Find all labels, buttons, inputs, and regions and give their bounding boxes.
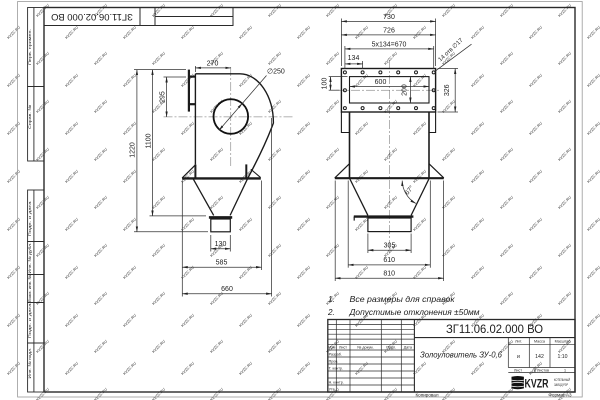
svg-text:Листов: Листов <box>537 368 549 372</box>
svg-text:Масса: Масса <box>534 340 546 344</box>
svg-text:585: 585 <box>216 260 228 267</box>
svg-text:610: 610 <box>383 257 395 264</box>
svg-text:Изм: Изм <box>329 346 336 350</box>
svg-text:326: 326 <box>444 84 451 96</box>
svg-text:Формат А3: Формат А3 <box>548 392 572 397</box>
svg-text:Масштаб: Масштаб <box>555 340 571 344</box>
svg-text:Золоуловитель ЗУ-0,6: Золоуловитель ЗУ-0,6 <box>420 350 502 360</box>
svg-text:Т. контр.: Т. контр. <box>329 366 343 370</box>
svg-text:1220: 1220 <box>130 142 137 158</box>
svg-text:200: 200 <box>402 84 409 96</box>
svg-text:ЗГ11.06.02.000 ВО: ЗГ11.06.02.000 ВО <box>51 11 133 22</box>
svg-text:295: 295 <box>159 91 166 103</box>
svg-text:1.: 1. <box>328 295 335 304</box>
svg-text:134: 134 <box>348 55 360 62</box>
svg-text:Н. контр.: Н. контр. <box>329 380 344 384</box>
svg-text:ЗАВОД РЗР: ЗАВОД РЗР <box>554 383 569 387</box>
svg-text:Инв. № подл.: Инв. № подл. <box>27 348 32 379</box>
svg-text:730: 730 <box>383 14 395 21</box>
svg-text:600: 600 <box>375 79 387 86</box>
svg-text:ЗГ11.06.02.000 ВО: ЗГ11.06.02.000 ВО <box>446 322 543 336</box>
svg-text:100: 100 <box>321 78 328 90</box>
svg-text:Перв. примен.: Перв. примен. <box>27 29 32 65</box>
svg-text:726: 726 <box>383 27 395 34</box>
svg-text:Дата: Дата <box>404 346 413 350</box>
svg-text:130: 130 <box>215 241 227 248</box>
svg-text:Пров.: Пров. <box>329 359 339 363</box>
svg-text:Подп.: Подп. <box>386 346 396 350</box>
svg-text:142: 142 <box>535 354 544 360</box>
svg-text:Утв.: Утв. <box>329 387 336 391</box>
svg-text:Копировал: Копировал <box>415 392 438 397</box>
svg-text:1:10: 1:10 <box>557 354 567 360</box>
svg-text:1100: 1100 <box>145 133 152 148</box>
svg-text:270: 270 <box>207 61 219 68</box>
svg-text:660: 660 <box>221 286 233 293</box>
svg-text:Разраб.: Разраб. <box>329 352 342 356</box>
svg-text:2.: 2. <box>327 308 335 317</box>
svg-text:Допустимые отклонения ±50мм: Допустимые отклонения ±50мм <box>348 308 479 317</box>
svg-text:Лит.: Лит. <box>515 340 522 344</box>
svg-text:KVZR: KVZR <box>525 376 549 390</box>
svg-text:Подп. и дата: Подп. и дата <box>27 200 32 236</box>
svg-text:1: 1 <box>564 368 566 372</box>
svg-text:Взам. инв. №: Взам. инв. № <box>27 275 32 302</box>
svg-text:№ докум.: № докум. <box>357 346 373 350</box>
svg-text:Инв. № дубл.: Инв. № дубл. <box>27 243 32 274</box>
svg-text:Лист: Лист <box>514 368 522 372</box>
svg-text:∅250: ∅250 <box>267 69 285 76</box>
svg-text:Справ. №: Справ. № <box>27 105 32 129</box>
svg-text:810: 810 <box>383 271 395 278</box>
svg-text:Лист: Лист <box>339 346 347 350</box>
svg-text:Подп. и дата: Подп. и дата <box>27 302 32 338</box>
svg-text:Все размеры для справок: Все размеры для справок <box>350 295 456 304</box>
svg-text:и: и <box>517 354 520 360</box>
svg-text:КОТЕЛЬНЫЙ: КОТЕЛЬНЫЙ <box>554 378 571 382</box>
svg-text:5х134=670: 5х134=670 <box>372 41 407 48</box>
svg-text:305: 305 <box>384 243 396 250</box>
